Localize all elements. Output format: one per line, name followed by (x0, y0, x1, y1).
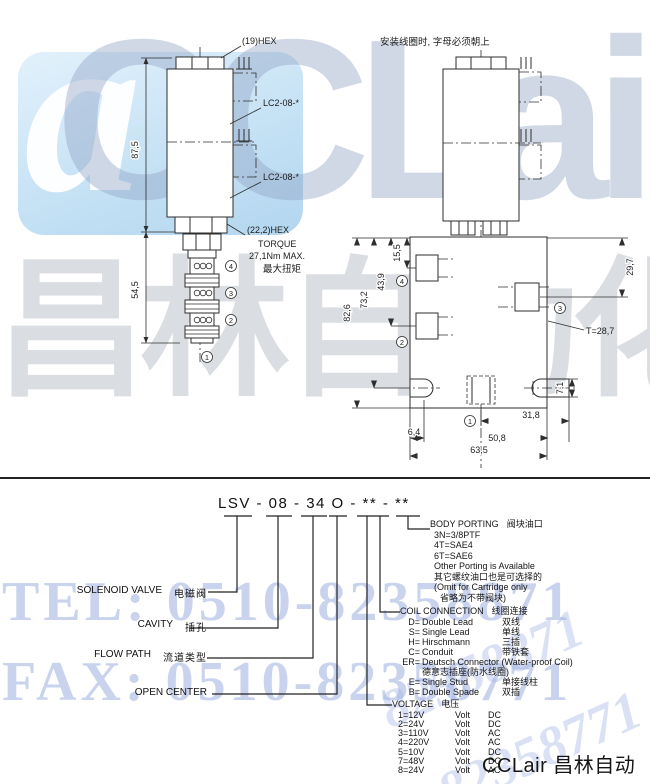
coil-option-er-cn: 德意志插座(防水线圈) (400, 667, 573, 677)
terminal-symbol-top (233, 57, 256, 101)
label-solenoid-valve: SOLENOID VALVE 电磁阀 (0, 585, 207, 600)
porting-option-3n: 3N=3/8PTF (434, 530, 543, 541)
voltage-title-cn: 电压 (441, 699, 459, 709)
hex22-label: (22,2)HEX (247, 225, 289, 235)
voltage-option-7: 7=48VVoltDC (398, 756, 459, 765)
porting-omit-cn: 省略为不带阀块) (440, 593, 543, 604)
solenoid-valve-en: SOLENOID VALVE (77, 585, 162, 600)
dim-31-8: 31,8 (522, 410, 540, 420)
dim-82-6: 82,6 (342, 304, 352, 322)
port-4-balloon: 4 (229, 262, 233, 271)
coil-connection-title-en: COIL CONNECTION (400, 606, 484, 616)
voltage-option-3: 3=110VVoltAC (398, 728, 459, 737)
voltage-title: VOLTAGE电压 (392, 699, 459, 710)
coil-thread-label-2: LC2-08-* (263, 172, 300, 182)
dim-15-5: 15,5 (392, 244, 402, 262)
cavity-cn: 插孔 (185, 619, 207, 634)
coil-option-er: ER=Deutsch Connector (Water-proof Coil) (400, 657, 573, 667)
coil-connection-title: COIL CONNECTION线圈连接 (400, 606, 573, 617)
dim-6-4: 6,4 (408, 427, 421, 437)
dim-87-5: 87,5 (130, 141, 140, 159)
port-2-balloon: 2 (229, 316, 233, 325)
thickness-label: T=28,7 (586, 326, 614, 336)
flow-path-cn: 流道类型 (163, 649, 207, 664)
coil-option-s: S=Single Lead单线 (400, 627, 573, 637)
terminal-symbol-mid (233, 129, 256, 177)
cavity-en: CAVITY (138, 619, 173, 634)
coil-option-e: E=Single Stud单接线柱 (400, 677, 573, 687)
port-4-balloon-right: 4 (400, 277, 404, 286)
torque-label-1: TORQUE (258, 239, 296, 249)
body-porting-block: BODY PORTING阀块油口 3N=3/8PTF 4T=SAE4 6T=SA… (430, 519, 543, 603)
open-center-en: OPEN CENTER (135, 687, 207, 698)
coil-option-c: C=Conduit带铁套 (400, 647, 573, 657)
terminal-symbol-top-right (519, 57, 541, 102)
label-open-center: OPEN CENTER (0, 687, 207, 698)
port-3-balloon-right: 3 (558, 304, 562, 313)
cartridge-stem (185, 258, 219, 343)
section-divider (0, 477, 650, 479)
coil-connection-title-cn: 线圈连接 (492, 606, 528, 616)
voltage-option-2: 2=24VVoltDC (398, 719, 459, 728)
left-valve-drawing: (19)HEX LC2-08-* LC2-08-* 87,5 (130, 36, 305, 363)
dim-43-9: 43,9 (376, 273, 386, 291)
porting-note-en: Other Porting is Available (434, 561, 543, 572)
coil-install-note: 安装线圈时, 字母必须朝上 (380, 36, 490, 48)
port-2-balloon-right: 2 (400, 338, 404, 347)
coil-connection-block: COIL CONNECTION线圈连接 D=Double Lead双线 S=Si… (400, 606, 573, 697)
torque-label-2: 27,1Nm MAX. (249, 251, 305, 261)
voltage-block: VOLTAGE电压 1=12VVoltDC 2=24VVoltDC 3=110V… (392, 699, 459, 775)
flow-path-en: FLOW PATH (94, 649, 151, 664)
voltage-option-8: 8=24VVoltAC (398, 765, 459, 774)
dim-7-1: 7,1 (555, 382, 565, 395)
dim-73-2: 73,2 (359, 291, 369, 309)
coil-thread-label-1: LC2-08-* (263, 98, 300, 108)
technical-drawings: (19)HEX LC2-08-* LC2-08-* 87,5 (0, 0, 650, 478)
coil-option-d: D=Double Lead双线 (400, 617, 573, 627)
porting-option-6t: 6T=SAE6 (434, 551, 543, 562)
coil-option-b: B=Double Spade双插 (400, 687, 573, 697)
port-3-balloon: 3 (229, 289, 233, 298)
voltage-option-5: 5=10VVoltDC (398, 747, 459, 756)
torque-label-3: 最大扭矩 (263, 263, 302, 275)
porting-option-4t: 4T=SAE4 (434, 540, 543, 551)
label-flow-path: FLOW PATH 流道类型 (0, 649, 207, 664)
body-porting-title-cn: 阀块油口 (507, 519, 543, 529)
datasheet-page: a CCLair 昌林自动化 TEL: 0510-82358871 FAX: 0… (0, 0, 650, 784)
dim-63-5: 63,5 (470, 445, 488, 455)
hex19-label: (19)HEX (242, 36, 277, 46)
voltage-option-1: 1=12VVoltDC (398, 710, 459, 719)
right-valve-drawing: 安装线圈时, 字母必须朝上 (342, 36, 635, 468)
porting-omit-en: (Omit for Cartridge only (434, 582, 543, 593)
dim-54-5: 54,5 (130, 281, 140, 299)
port-1-balloon-right: 1 (468, 417, 472, 426)
voltage-option-4: 4=220VVoltAC (398, 737, 459, 746)
body-porting-title-en: BODY PORTING (430, 519, 499, 529)
coil-option-h: H=Hirschmann三插 (400, 637, 573, 647)
solenoid-valve-cn: 电磁阀 (174, 585, 207, 600)
port-1-balloon: 1 (205, 353, 209, 362)
dim-50-8: 50,8 (488, 433, 506, 443)
dim-29-7: 29,7 (625, 258, 635, 276)
body-porting-title: BODY PORTING阀块油口 (430, 519, 543, 530)
terminal-symbol-mid-right (519, 129, 541, 179)
porting-note-cn: 其它螺纹油口也是可选择的 (434, 572, 543, 583)
voltage-title-en: VOLTAGE (392, 699, 433, 709)
label-cavity: CAVITY 插孔 (0, 619, 207, 634)
footer-brand: CCLair 昌林自动化 (482, 749, 650, 784)
